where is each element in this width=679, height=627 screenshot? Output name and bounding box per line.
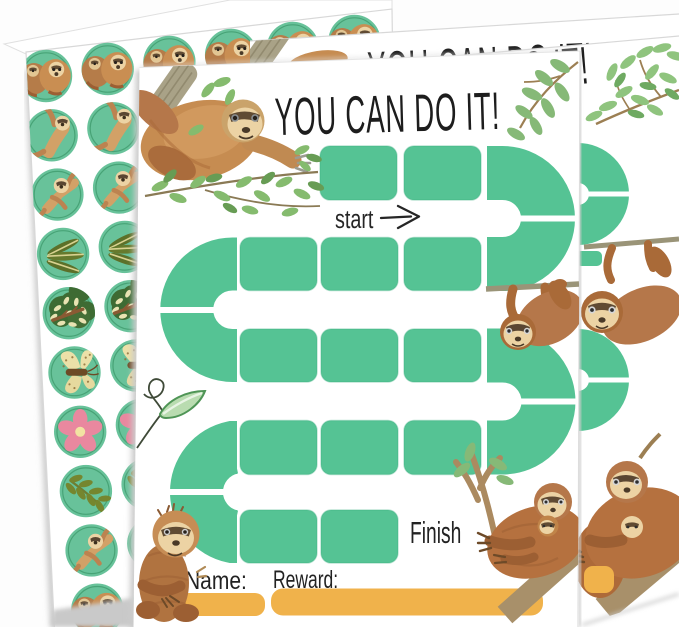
svg-text:start: start (335, 204, 374, 233)
svg-text:Name:: Name: (185, 566, 247, 594)
svg-text:Finish: Finish (410, 517, 461, 551)
svg-text:YOU CAN DO IT!: YOU CAN DO IT! (274, 81, 501, 146)
